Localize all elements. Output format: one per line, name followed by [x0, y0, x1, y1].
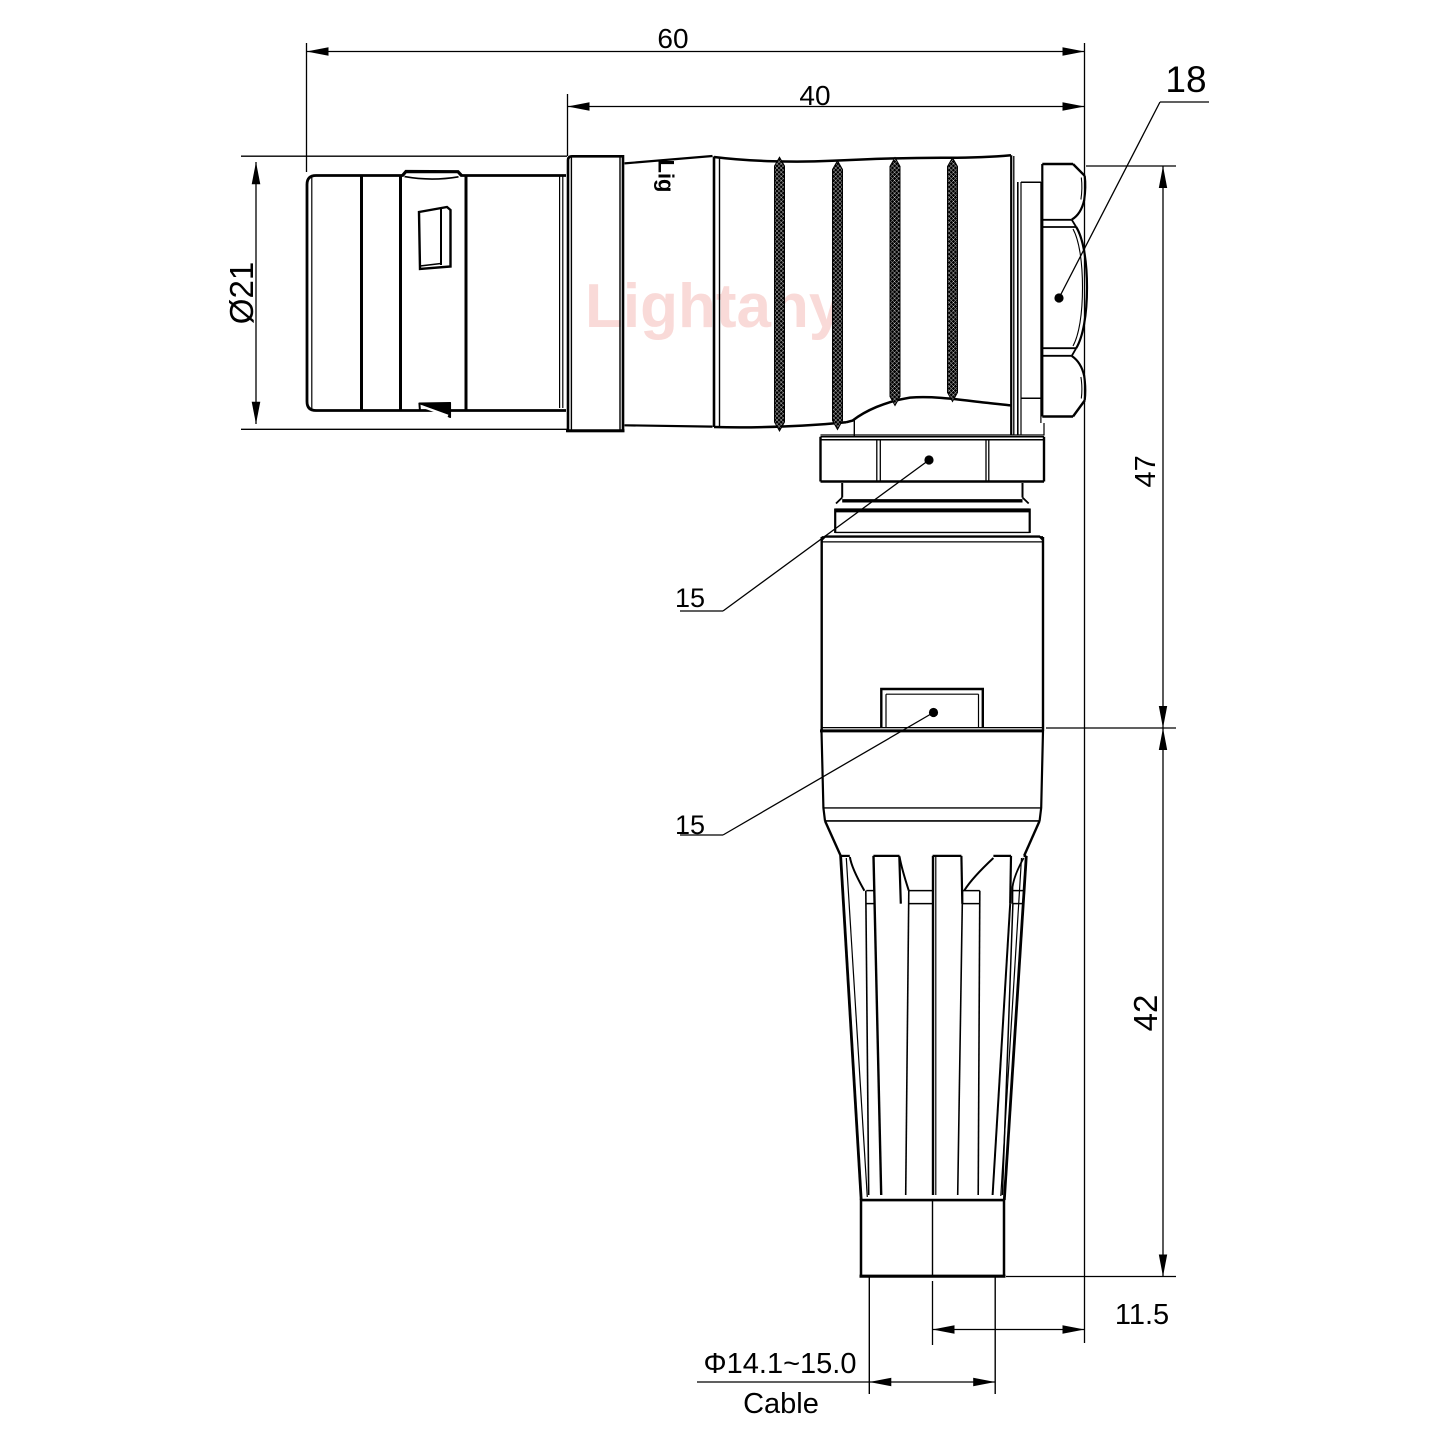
svg-text:11.5: 11.5 — [1115, 1299, 1169, 1331]
svg-text:18: 18 — [1165, 59, 1206, 100]
svg-text:Cable: Cable — [743, 1388, 819, 1420]
svg-text:Lig: Lig — [654, 160, 679, 193]
svg-text:60: 60 — [657, 23, 688, 54]
svg-text:15: 15 — [675, 810, 705, 840]
svg-text:15: 15 — [675, 583, 705, 613]
svg-text:47: 47 — [1130, 455, 1162, 487]
svg-text:40: 40 — [799, 80, 830, 111]
svg-text:Ø21: Ø21 — [223, 262, 260, 324]
svg-text:Φ14.1~15.0: Φ14.1~15.0 — [704, 1348, 857, 1380]
svg-text:42: 42 — [1127, 995, 1164, 1032]
